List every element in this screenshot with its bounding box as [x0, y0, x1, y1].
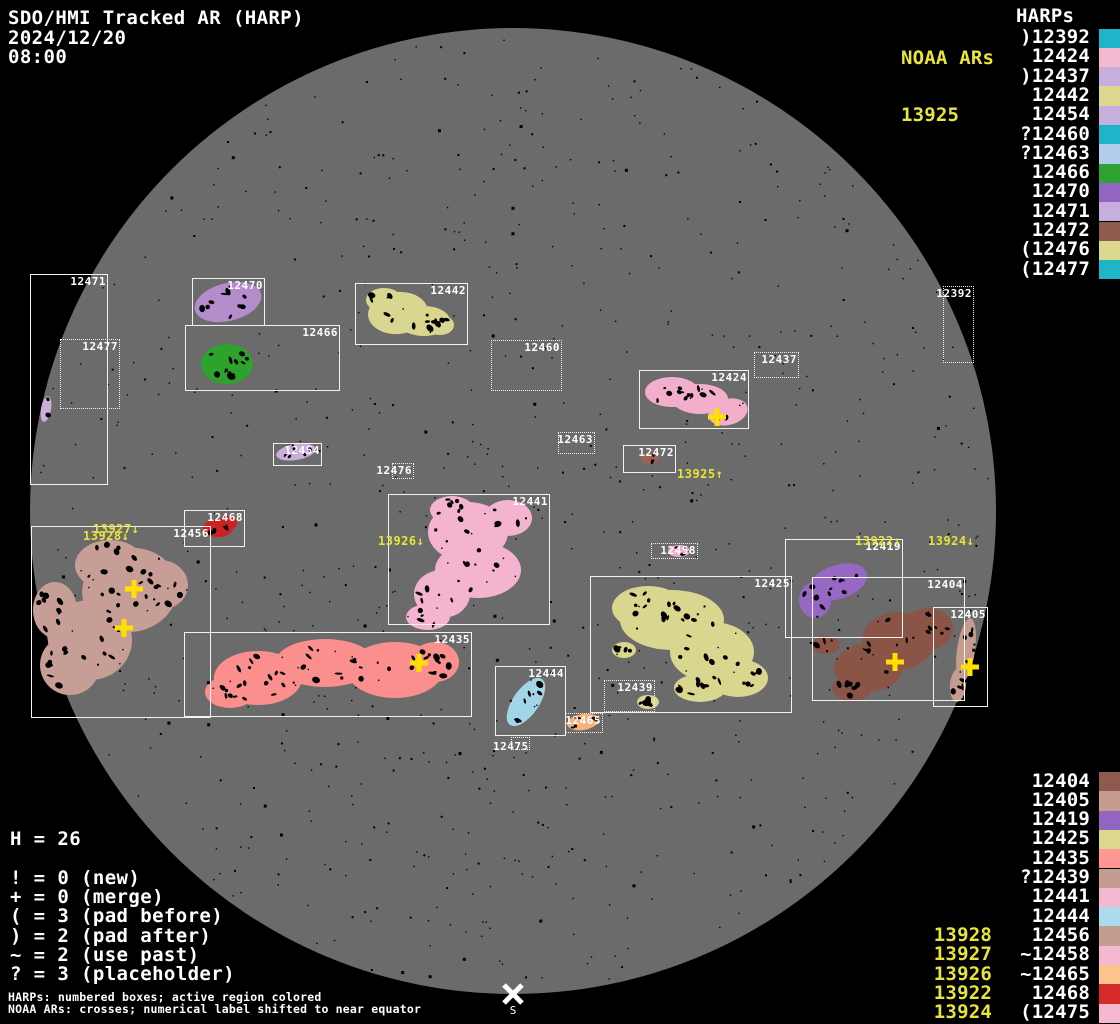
harp-box-label-12460: 12460	[524, 342, 560, 353]
harp-box-12439: 12439	[604, 680, 655, 712]
noaa-disk-label-13924: 13924↓	[928, 535, 974, 547]
page-title: SDO/HMI Tracked AR (HARP)	[8, 9, 304, 29]
harp-box-12454: 12454	[273, 443, 322, 466]
bottom-noaa-number-13922: 13922	[934, 984, 992, 1003]
harp-box-label-12454: 12454	[284, 445, 320, 456]
harp-box-label-12472: 12472	[638, 447, 674, 458]
harp-box-12465: 12465	[565, 713, 603, 733]
harp-box-12444: 12444	[495, 666, 566, 736]
symbol-legend: ! = 0 (new)+ = 0 (merge)( = 3 (pad befor…	[10, 869, 235, 984]
harp-legend-number-12477: (12477	[1020, 260, 1090, 279]
harp-box-12437: 12437	[754, 352, 799, 378]
bottom-color-swatch-12405	[1099, 791, 1120, 810]
harp-box-label-12392: 12392	[936, 288, 972, 299]
harp-color-swatch-12424	[1099, 48, 1120, 67]
harp-box-12458: 12458	[651, 543, 698, 559]
harp-box-label-12441: 12441	[512, 496, 548, 507]
legend-line: ? = 3 (placeholder)	[10, 965, 235, 984]
harp-box-12441: 12441	[388, 494, 550, 625]
noaa-panel: NOAA ARs 13925	[901, 11, 994, 163]
harp-box-label-12463: 12463	[557, 434, 593, 445]
harp-color-swatch-12442	[1099, 86, 1120, 105]
harp-color-swatch-12392	[1099, 29, 1120, 48]
harp-box-12475: 12475	[511, 737, 530, 750]
harp-box-12405: 12405	[933, 607, 988, 707]
harp-box-12442: 12442	[355, 283, 468, 345]
solar-harp-map: S 12471124771247012466124421246012437124…	[0, 0, 1120, 1024]
harp-count: H = 26	[10, 830, 81, 849]
harp-box-label-12471: 12471	[70, 276, 106, 287]
bottom-harp-number-12405: 12405	[1020, 791, 1090, 810]
harp-box-12435: 12435	[184, 632, 472, 717]
harp-box-12477: 12477	[60, 339, 120, 409]
harp-color-swatch-12466	[1099, 164, 1120, 183]
harp-box-label-12465: 12465	[565, 715, 601, 726]
harp-box-label-12404: 12404	[927, 579, 963, 590]
harp-legend-number-12470: 12470	[1020, 182, 1090, 201]
harp-legend-number-12460: ?12460	[1020, 125, 1090, 144]
harp-box-label-12424: 12424	[711, 372, 747, 383]
harp-color-swatch-12470	[1099, 183, 1120, 202]
noaa-disk-label-13926: 13926↓	[378, 535, 424, 547]
harp-legend-number-12463: ?12463	[1020, 144, 1090, 163]
harp-color-swatch-12477	[1099, 260, 1120, 279]
noaa-panel-title: NOAA ARs	[901, 49, 994, 68]
harp-box-label-12437: 12437	[761, 354, 797, 365]
harp-box-12468: 12468	[184, 510, 245, 547]
harp-box-12472: 12472	[623, 445, 676, 473]
harp-box-12460: 12460	[491, 340, 562, 391]
bottom-harp-number-12458: ~12458	[1020, 945, 1090, 964]
noaa-unassigned-number: 13925	[901, 106, 994, 125]
bottom-color-swatch-12456	[1099, 926, 1120, 945]
bottom-harp-number-12456: 12456	[1020, 926, 1090, 945]
bottom-noaa-number-13927: 13927	[934, 945, 992, 964]
bottom-noaa-number-13924: 13924	[934, 1003, 992, 1022]
legend-line: ) = 2 (pad after)	[10, 927, 235, 946]
bottom-harp-number-12404: 12404	[1020, 772, 1090, 791]
bottom-noaa-number-13928: 13928	[934, 926, 992, 945]
harp-box-12463: 12463	[558, 432, 595, 454]
harp-color-swatch-12454	[1099, 106, 1120, 125]
harp-color-swatch-12472	[1099, 222, 1120, 241]
harp-legend-number-12392: )12392	[1020, 28, 1090, 47]
noaa-disk-label-13925: 13925↑	[677, 468, 723, 480]
bottom-color-swatch-12404	[1099, 772, 1120, 791]
harp-color-swatch-12471	[1099, 202, 1120, 221]
bottom-harp-number-12439: ?12439	[1020, 868, 1090, 887]
bottom-color-swatch-12435	[1099, 849, 1120, 868]
harp-legend-number-12442: 12442	[1020, 86, 1090, 105]
bottom-color-swatch-12441	[1099, 888, 1120, 907]
harp-box-label-12470: 12470	[227, 280, 263, 291]
harp-box-label-12405: 12405	[950, 609, 986, 620]
harp-legend-number-12424: 12424	[1020, 47, 1090, 66]
bottom-noaa-number-13926: 13926	[934, 965, 992, 984]
harp-box-12424: 12424	[639, 370, 749, 429]
noaa-disk-label-13928: 13928↓	[83, 530, 129, 542]
bottom-harp-number-12468: 12468	[1020, 984, 1090, 1003]
harp-legend-number-12437: )12437	[1020, 67, 1090, 86]
harp-box-label-12435: 12435	[434, 634, 470, 645]
harp-box-12466: 12466	[185, 325, 340, 391]
bottom-harp-number-12465: ~12465	[1020, 965, 1090, 984]
bottom-harp-number-12475: (12475	[1020, 1003, 1090, 1022]
harp-box-label-12442: 12442	[430, 285, 466, 296]
harp-color-swatch-12463	[1099, 144, 1120, 163]
bottom-color-swatch-12419	[1099, 811, 1120, 830]
harp-box-label-12439: 12439	[617, 682, 653, 693]
bottom-harp-number-12441: 12441	[1020, 887, 1090, 906]
harp-legend-number-12471: 12471	[1020, 202, 1090, 221]
harp-box-label-12476: 12476	[376, 465, 412, 476]
bottom-harp-number-12419: 12419	[1020, 810, 1090, 829]
bottom-color-swatch-12444	[1099, 907, 1120, 926]
harp-box-label-12475: 12475	[493, 741, 529, 752]
harp-legend-number-12466: 12466	[1020, 163, 1090, 182]
bottom-harp-number-12425: 12425	[1020, 829, 1090, 848]
bottom-harp-number-12435: 12435	[1020, 849, 1090, 868]
harp-box-12470: 12470	[192, 278, 265, 326]
time-label: 08:00	[8, 48, 304, 68]
harp-box-label-12458: 12458	[660, 545, 696, 556]
harp-box-label-12444: 12444	[528, 668, 564, 679]
bottom-color-swatch-12468	[1099, 984, 1120, 1003]
harp-legend-number-12476: (12476	[1020, 240, 1090, 259]
harp-box-12476: 12476	[392, 463, 414, 479]
harp-color-swatch-12476	[1099, 241, 1120, 260]
footer-line-2: NOAA ARs: crosses; numerical label shift…	[8, 1003, 421, 1015]
header-block: SDO/HMI Tracked AR (HARP) 2024/12/20 08:…	[8, 9, 304, 68]
harp-box-label-12466: 12466	[302, 327, 338, 338]
harp-box-12392: 12392	[943, 286, 974, 363]
bottom-color-swatch-12465	[1099, 965, 1120, 984]
bottom-color-swatch-12439	[1099, 869, 1120, 888]
harps-panel-title: HARPs	[1016, 7, 1074, 26]
noaa-disk-label-13922: 13922↓	[855, 535, 901, 547]
legend-line: ( = 3 (pad before)	[10, 907, 235, 926]
harp-box-label-12477: 12477	[82, 341, 118, 352]
harp-color-swatch-12437	[1099, 67, 1120, 86]
harp-legend-number-12472: 12472	[1020, 221, 1090, 240]
bottom-color-swatch-12425	[1099, 830, 1120, 849]
harp-legend-number-12454: 12454	[1020, 105, 1090, 124]
bottom-color-swatch-12458	[1099, 946, 1120, 965]
bottom-color-swatch-12475	[1099, 1004, 1120, 1023]
harp-box-label-12468: 12468	[207, 512, 243, 523]
harp-color-swatch-12460	[1099, 125, 1120, 144]
harp-box-label-12425: 12425	[754, 578, 790, 589]
bottom-harp-number-12444: 12444	[1020, 907, 1090, 926]
